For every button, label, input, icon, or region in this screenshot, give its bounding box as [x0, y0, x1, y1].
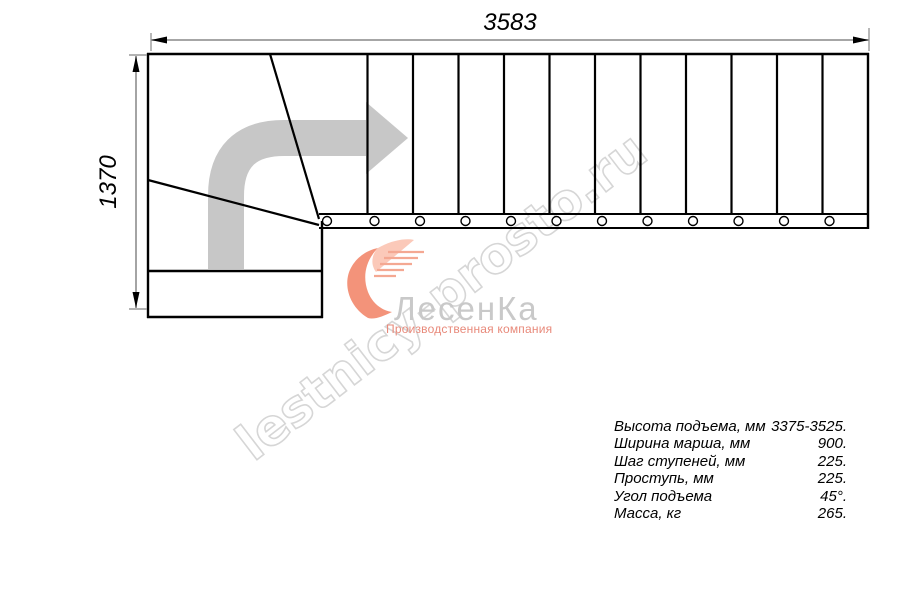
baluster-circle [461, 217, 470, 226]
baluster-circle [552, 217, 561, 226]
baluster-circle [734, 217, 743, 226]
tread-lines [368, 54, 823, 214]
spec-row-height: Высота подъема, мм 3375-3525. [614, 418, 847, 435]
dim-arrow-left [151, 37, 167, 44]
dimension-top-value: 3583 [460, 9, 560, 37]
dim-arrow-right [853, 37, 869, 44]
baluster-circle [323, 217, 332, 226]
spec-row-angle: Угол подъема 45°. [614, 488, 847, 505]
spec-label: Высота подъема, мм [614, 418, 766, 435]
baluster-circle [598, 217, 607, 226]
dimension-left [129, 55, 147, 309]
spec-value: 265. [818, 505, 847, 522]
spec-value: 225. [818, 470, 847, 487]
baluster-circle [825, 217, 834, 226]
spec-row-tread: Проступь, мм 225. [614, 470, 847, 487]
spec-row-width: Ширина марша, мм 900. [614, 435, 847, 452]
spec-value: 900. [818, 435, 847, 452]
spec-label: Угол подъема [614, 488, 712, 505]
logo-swoosh-wing [372, 239, 414, 272]
spec-label: Шаг ступеней, мм [614, 453, 745, 470]
spec-table: Высота подъема, мм 3375-3525. Ширина мар… [614, 418, 847, 522]
logo-subtitle: Производственная компания [386, 322, 552, 336]
direction-arrow-icon [226, 102, 408, 269]
spec-label: Масса, кг [614, 505, 681, 522]
baluster-circle [416, 217, 425, 226]
baluster-circle [507, 217, 516, 226]
spec-label: Проступь, мм [614, 470, 714, 487]
dim-arrow-down [133, 292, 140, 308]
baluster-circle [689, 217, 698, 226]
spec-value: 3375-3525. [771, 418, 847, 435]
dimension-left-value: 1370 [95, 152, 119, 212]
baluster-circle [370, 217, 379, 226]
baluster-circle [780, 217, 789, 226]
spec-value: 225. [818, 453, 847, 470]
spec-row-step: Шаг ступеней, мм 225. [614, 453, 847, 470]
staircase-drawing-page: lestnicy-prosto.ru [0, 0, 900, 600]
spec-value: 45°. [820, 488, 847, 505]
baluster-circle [643, 217, 652, 226]
spec-label: Ширина марша, мм [614, 435, 750, 452]
spec-row-mass: Масса, кг 265. [614, 505, 847, 522]
dim-arrow-up [133, 56, 140, 72]
